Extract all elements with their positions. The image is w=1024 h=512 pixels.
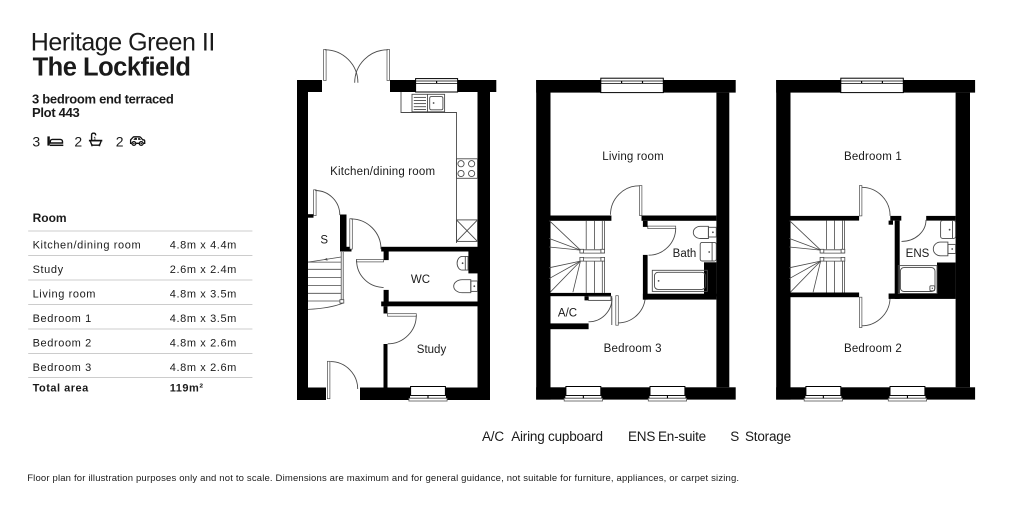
svg-text:Bedroom 2: Bedroom 2 <box>33 337 92 349</box>
svg-text:ENS: ENS <box>628 429 655 444</box>
svg-text:Bedroom 2: Bedroom 2 <box>844 343 902 355</box>
svg-text:Living room: Living room <box>602 151 664 163</box>
svg-text:4.8m x 2.6m: 4.8m x 2.6m <box>170 362 237 374</box>
svg-text:2: 2 <box>74 133 82 149</box>
svg-text:ENS: ENS <box>906 248 930 260</box>
svg-text:A/C: A/C <box>558 308 577 320</box>
svg-text:Total area: Total area <box>33 383 90 395</box>
svg-text:Bedroom 3: Bedroom 3 <box>604 343 662 355</box>
svg-text:Room: Room <box>33 211 67 225</box>
svg-text:WC: WC <box>411 274 430 286</box>
svg-text:Heritage Green II: Heritage Green II <box>31 29 215 57</box>
svg-text:Kitchen/dining room: Kitchen/dining room <box>330 166 435 178</box>
svg-text:En-suite: En-suite <box>658 429 706 444</box>
svg-text:Floor plan for illustration pu: Floor plan for illustration purposes onl… <box>27 473 739 484</box>
svg-text:Study: Study <box>33 264 64 276</box>
svg-text:Bedroom 3: Bedroom 3 <box>33 362 92 374</box>
svg-text:Storage: Storage <box>745 429 791 444</box>
svg-text:S: S <box>730 429 739 444</box>
svg-text:Bath: Bath <box>673 248 697 260</box>
svg-text:S: S <box>320 235 328 247</box>
svg-text:Living room: Living room <box>33 288 96 300</box>
svg-text:4.8m x 4.4m: 4.8m x 4.4m <box>170 239 237 251</box>
svg-text:Plot 443: Plot 443 <box>32 105 80 120</box>
svg-text:Bedroom 1: Bedroom 1 <box>33 313 92 325</box>
svg-text:Airing cupboard: Airing cupboard <box>511 429 603 444</box>
svg-text:A/C: A/C <box>482 429 504 444</box>
svg-text:4.8m x 2.6m: 4.8m x 2.6m <box>170 337 237 349</box>
svg-text:4.8m x 3.5m: 4.8m x 3.5m <box>170 313 237 325</box>
svg-text:Bedroom 1: Bedroom 1 <box>844 151 902 163</box>
svg-text:2.6m x 2.4m: 2.6m x 2.4m <box>170 264 237 276</box>
svg-text:3: 3 <box>32 133 40 149</box>
svg-text:Kitchen/dining room: Kitchen/dining room <box>33 239 142 251</box>
svg-text:The Lockfield: The Lockfield <box>33 54 191 82</box>
svg-text:Study: Study <box>417 344 447 356</box>
svg-text:2: 2 <box>116 133 124 149</box>
svg-text:4.8m x 3.5m: 4.8m x 3.5m <box>170 288 237 300</box>
svg-text:119m²: 119m² <box>170 383 204 395</box>
